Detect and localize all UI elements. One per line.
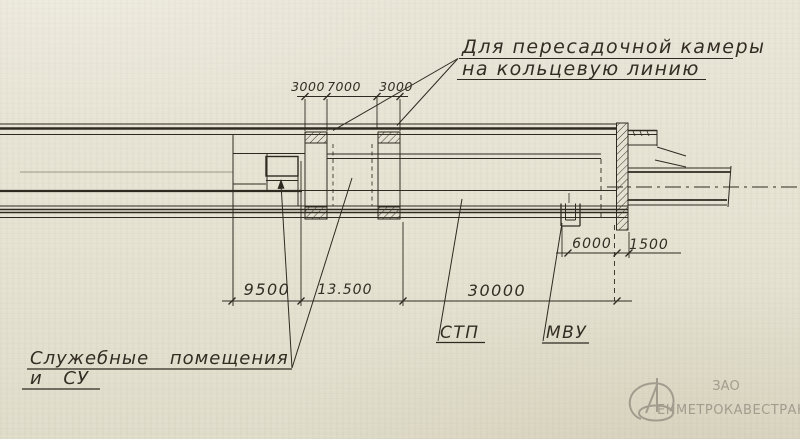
transfer-note-line1: Для пересадочной камеры [461, 36, 766, 58]
station-hall [327, 154, 601, 217]
dim-13500: 13.500 [318, 282, 373, 298]
dim-6000: 6000 [572, 236, 612, 252]
dim-7000: 7000 [327, 79, 361, 94]
mvu-label-text: МВУ [546, 323, 587, 343]
transfer-note-leader-left [333, 59, 458, 131]
top-dimension-lines [297, 93, 408, 131]
transfer-note-line2: на кольцевую линию [462, 58, 700, 80]
end-wall [617, 123, 629, 230]
dim-30000: 30000 [468, 281, 526, 300]
stp-label-text: СТП [440, 323, 480, 343]
stp-leader [438, 199, 462, 341]
service-leader-left [281, 184, 292, 368]
dim-3000-left: 3000 [291, 79, 325, 94]
service-label-line2: и СУ [30, 368, 89, 389]
tunnel-plan-drawing: 3000 7000 3000 9500 13.500 30000 6000 15… [0, 0, 800, 439]
dim-9500: 9500 [244, 280, 291, 299]
dim-3000-right: 3000 [379, 79, 413, 94]
stp-label: СТП [436, 199, 485, 343]
dim-1500: 1500 [629, 237, 669, 253]
upper-right-stub [628, 130, 686, 167]
company-watermark: ЗАО ЕНМЕТРОКАВЕСТРАНС [630, 378, 800, 421]
company-org-form: ЗАО [712, 379, 739, 394]
exit-tunnel [607, 166, 800, 207]
company-name: ЕНМЕТРОКАВЕСТРАНС [657, 403, 800, 418]
blueprint-page: 3000 7000 3000 9500 13.500 30000 6000 15… [0, 0, 800, 439]
service-label-line1: Служебные помещения [30, 348, 289, 369]
